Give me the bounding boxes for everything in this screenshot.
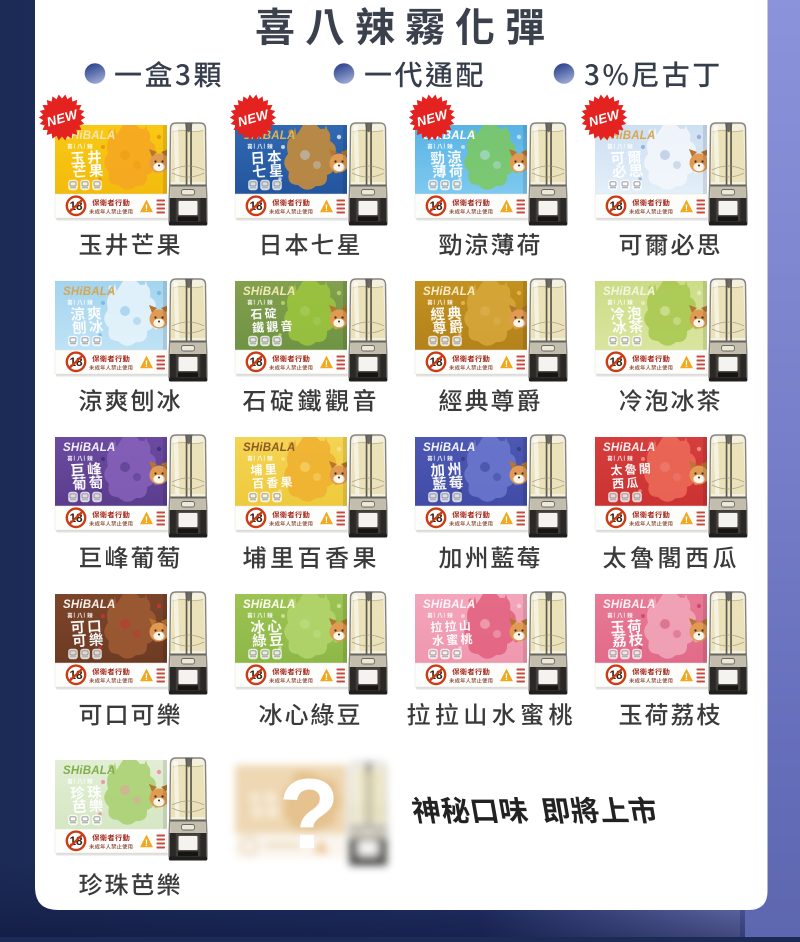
svg-text:SHiBALA: SHiBALA (63, 286, 116, 298)
svg-text:?: ? (279, 758, 339, 869)
svg-text:SHiBALA: SHiBALA (603, 442, 656, 454)
svg-text:SHiBALA: SHiBALA (603, 286, 656, 298)
svg-text:SHiBALA: SHiBALA (423, 599, 476, 611)
svg-text:SHiBALA: SHiBALA (63, 442, 116, 454)
svg-text:SHiBALA: SHiBALA (423, 442, 476, 454)
svg-text:SHiBALA: SHiBALA (243, 442, 296, 454)
svg-text:SHiBALA: SHiBALA (603, 599, 656, 611)
svg-text:SHiBALA: SHiBALA (243, 599, 296, 611)
svg-text:SHiBALA: SHiBALA (63, 765, 116, 777)
svg-text:SHiBALA: SHiBALA (243, 286, 296, 298)
svg-text:SHiBALA: SHiBALA (423, 286, 476, 298)
svg-text:SHiBALA: SHiBALA (63, 599, 116, 611)
